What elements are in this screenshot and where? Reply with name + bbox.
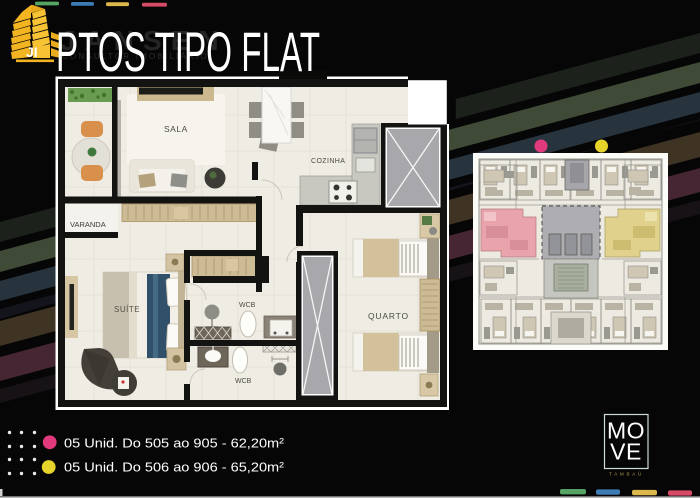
svg-text:WCB: WCB	[239, 302, 256, 309]
svg-text:VE: VE	[610, 439, 642, 465]
svg-text:TAMBAÚ: TAMBAÚ	[609, 471, 644, 477]
svg-text:JI: JI	[26, 44, 38, 60]
svg-text:QUARTO: QUARTO	[368, 311, 409, 321]
svg-text:SALA: SALA	[164, 124, 188, 134]
svg-text:COZINHA: COZINHA	[311, 158, 345, 165]
svg-text:PTOS TIPO FLAT: PTOS TIPO FLAT	[56, 20, 320, 83]
svg-text:05 Unid. Do 506 ao 906 - 65,20: 05 Unid. Do 506 ao 906 - 65,20m²	[64, 460, 285, 475]
svg-text:WCB: WCB	[235, 378, 252, 385]
svg-text:05 Unid. Do 505 ao 905 - 62,20: 05 Unid. Do 505 ao 905 - 62,20m²	[64, 436, 285, 451]
svg-text:SUÍTE: SUÍTE	[114, 305, 140, 314]
svg-text:VARANDA: VARANDA	[70, 220, 106, 229]
